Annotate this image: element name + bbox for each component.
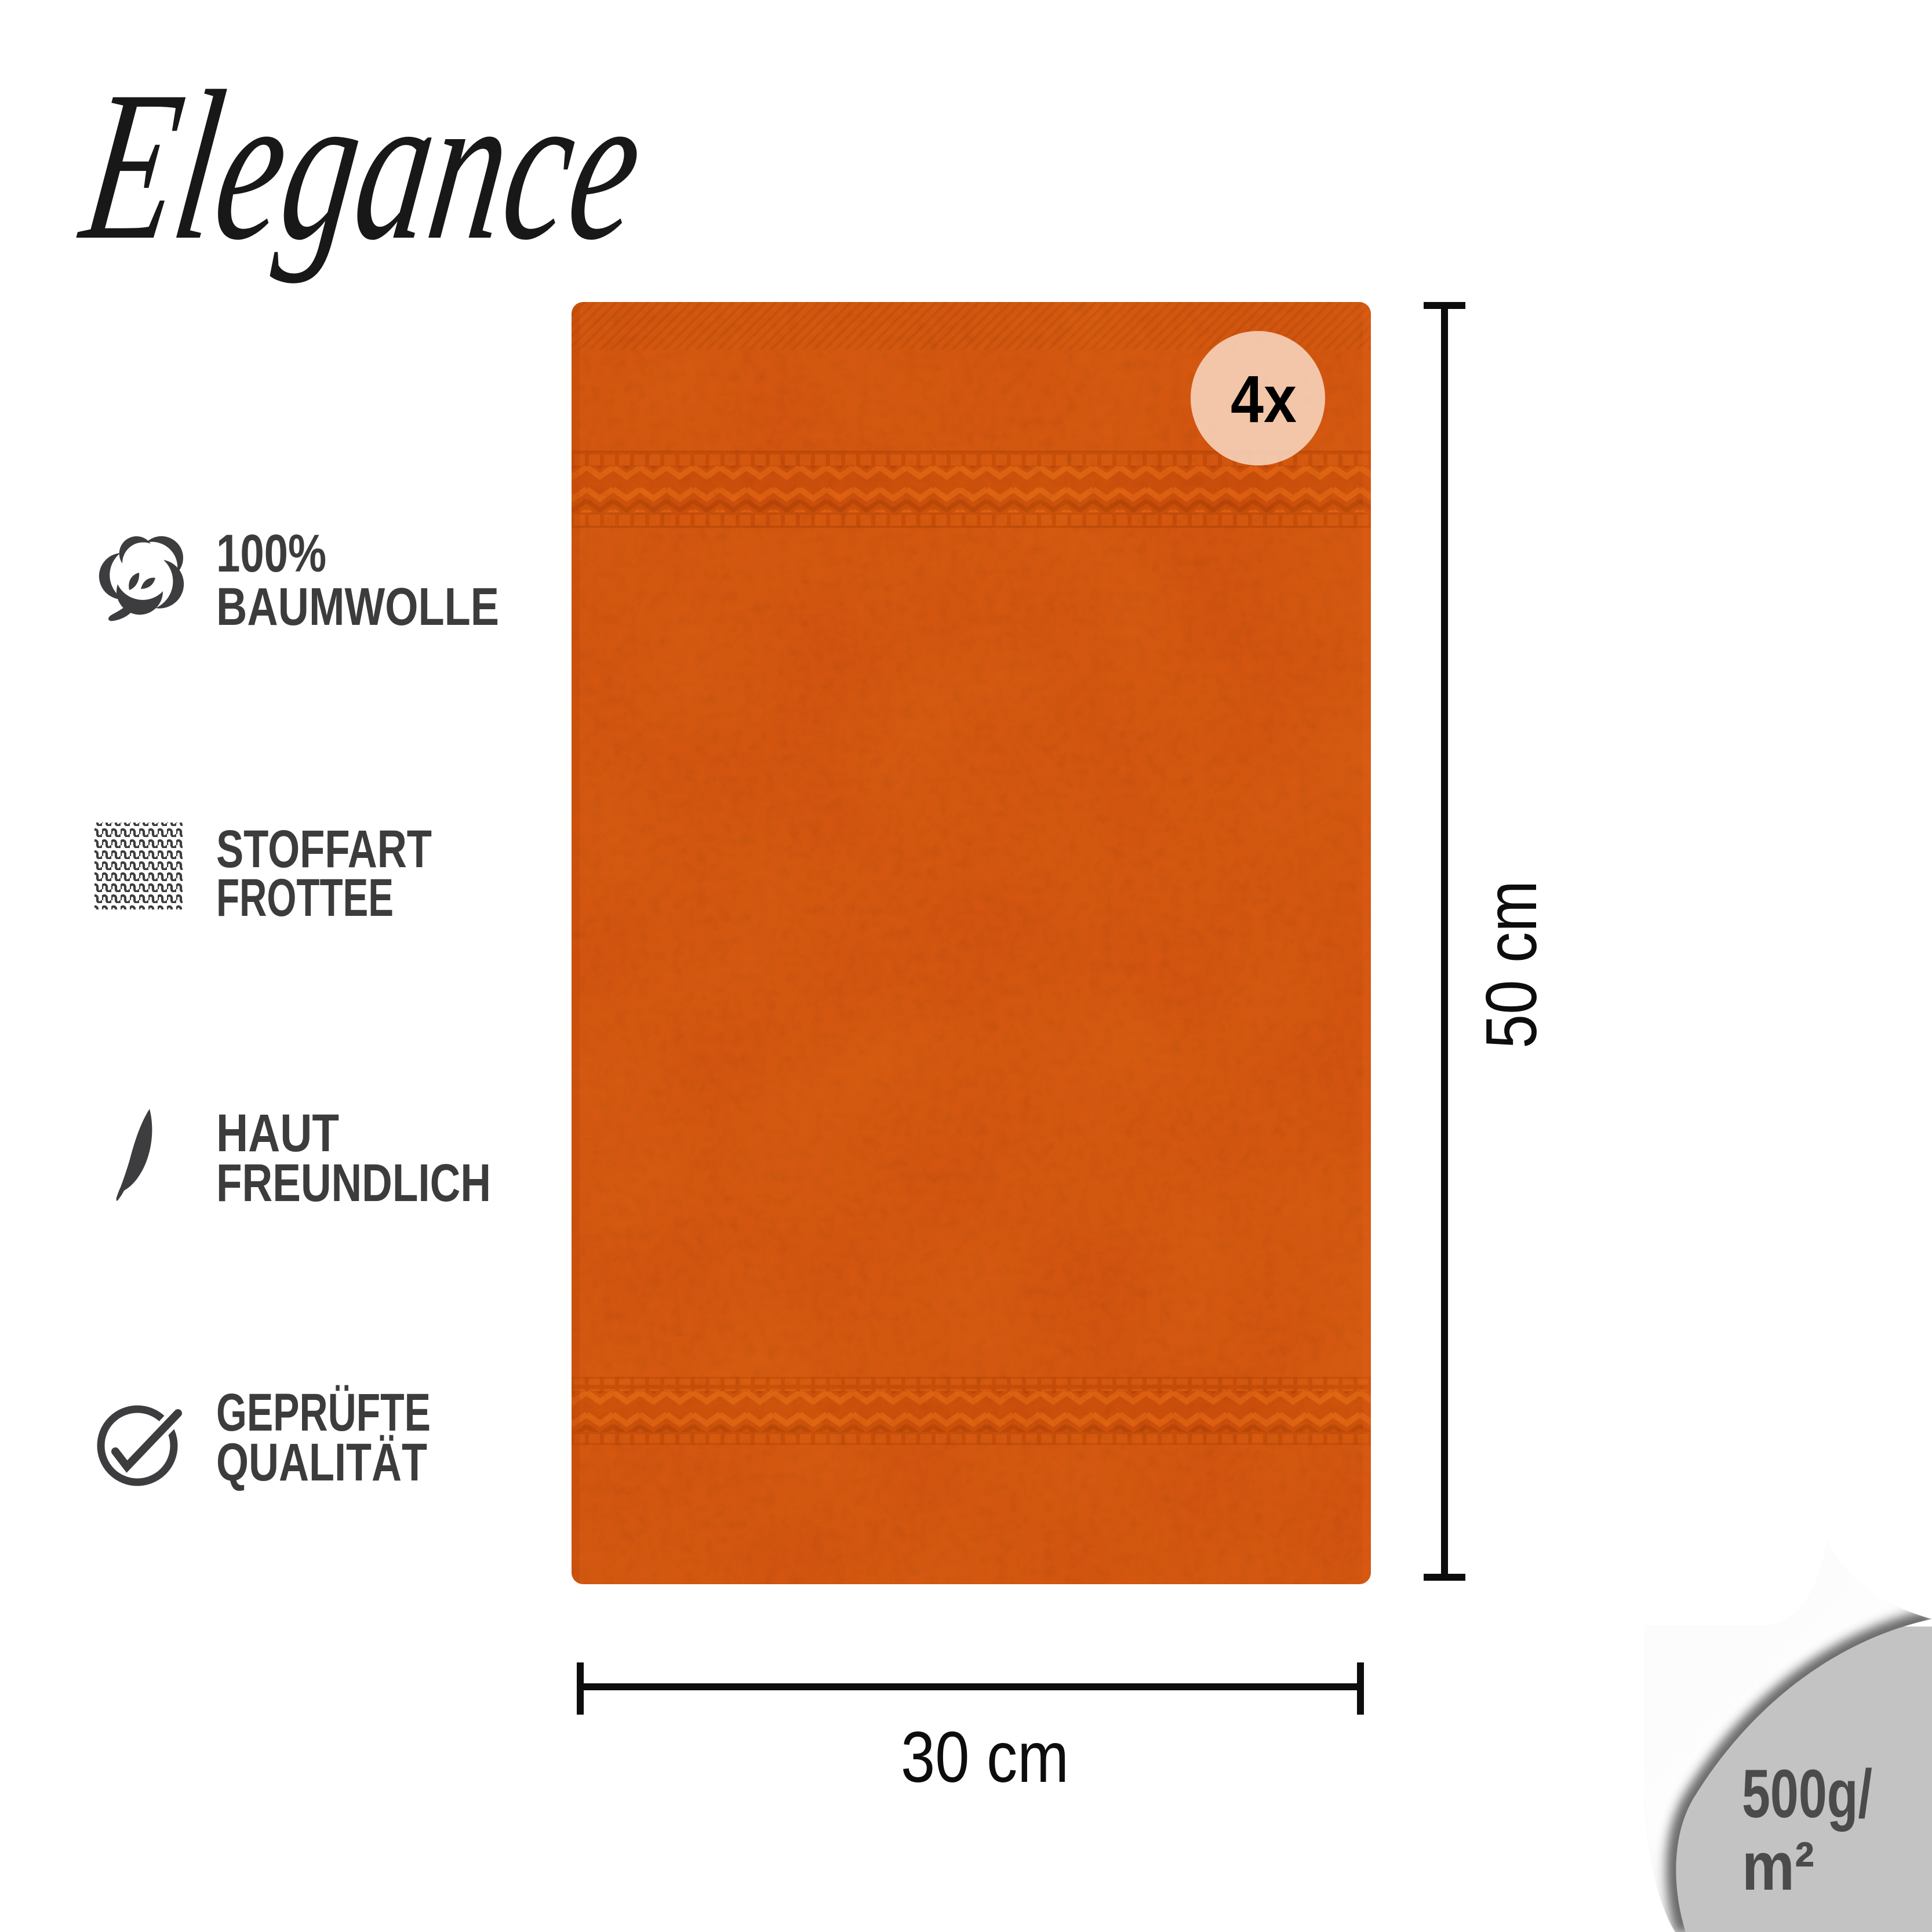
svg-text:QUALITÄT: QUALITÄT (216, 1433, 427, 1492)
svg-text:500g/: 500g/ (1742, 1756, 1872, 1832)
svg-text:4x: 4x (1231, 362, 1297, 436)
svg-text:50 cm: 50 cm (1472, 881, 1552, 1049)
svg-text:100%: 100% (216, 524, 326, 583)
svg-text:30 cm: 30 cm (901, 1718, 1069, 1798)
svg-text:FROTTEE: FROTTEE (216, 868, 394, 927)
svg-text:Elegance: Elegance (69, 48, 656, 285)
svg-text:BAUMWOLLE: BAUMWOLLE (216, 577, 499, 636)
svg-text:FREUNDLICH: FREUNDLICH (216, 1154, 491, 1213)
svg-text:m²: m² (1742, 1828, 1814, 1905)
